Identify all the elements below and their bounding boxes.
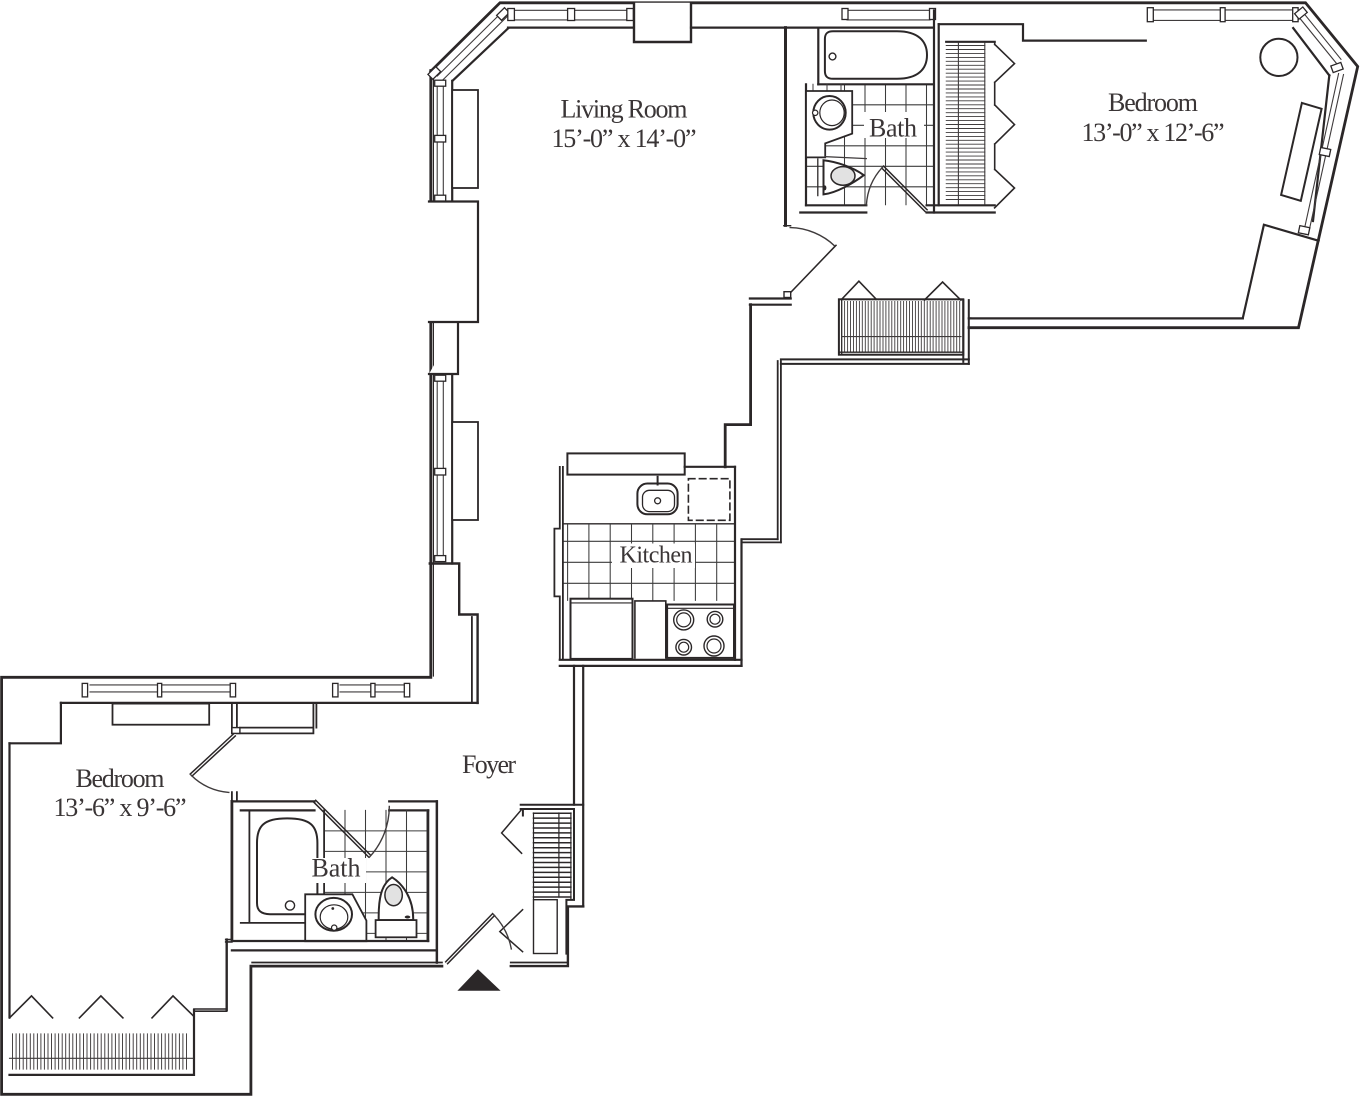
svg-text:Bath: Bath (869, 114, 917, 143)
svg-text:Foyer: Foyer (462, 750, 516, 779)
svg-text:Bedroom: Bedroom (1108, 88, 1198, 117)
svg-text:Bedroom: Bedroom (76, 764, 165, 793)
svg-text:15’-0” x 14’-0”: 15’-0” x 14’-0” (552, 124, 697, 153)
svg-text:Bath: Bath (312, 854, 361, 883)
svg-text:13’-0” x 12’-6”: 13’-0” x 12’-6” (1082, 118, 1225, 147)
svg-text:Kitchen: Kitchen (620, 543, 693, 569)
svg-text:13’-6” x 9’-6”: 13’-6” x 9’-6” (54, 793, 187, 822)
svg-text:Living Room: Living Room (561, 95, 688, 124)
